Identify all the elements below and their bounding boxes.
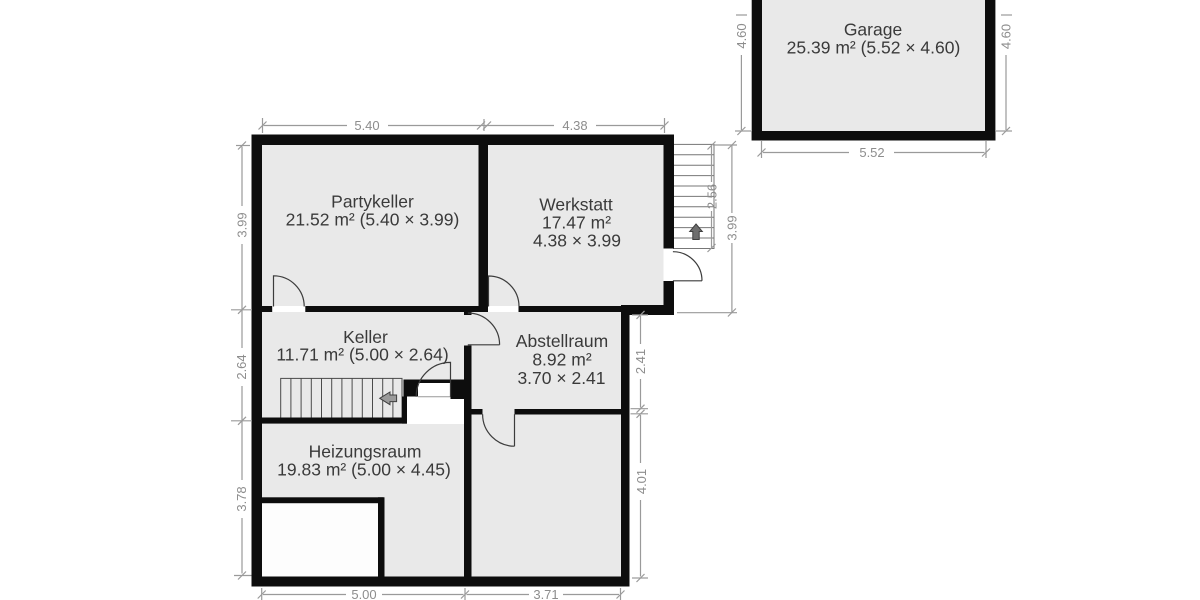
svg-text:Partykeller: Partykeller (331, 192, 414, 212)
svg-text:Heizungsraum: Heizungsraum (309, 442, 422, 462)
svg-text:3.99: 3.99 (235, 212, 250, 237)
svg-text:3.78: 3.78 (234, 486, 249, 511)
svg-text:Abstellraum: Abstellraum (516, 331, 608, 351)
svg-text:3.70 × 2.41: 3.70 × 2.41 (517, 368, 605, 388)
svg-text:4.60: 4.60 (999, 24, 1014, 49)
svg-text:5.00: 5.00 (351, 587, 376, 600)
svg-text:3.71: 3.71 (533, 587, 558, 600)
svg-text:4.01: 4.01 (634, 469, 649, 494)
svg-text:4.60: 4.60 (734, 23, 749, 48)
svg-text:17.47 m²: 17.47 m² (542, 213, 611, 233)
svg-text:Garage: Garage (844, 20, 902, 40)
svg-text:11.71 m² (5.00 × 2.64): 11.71 m² (5.00 × 2.64) (276, 345, 448, 365)
svg-text:5.40: 5.40 (354, 118, 379, 133)
svg-text:25.39 m² (5.52 × 4.60): 25.39 m² (5.52 × 4.60) (787, 38, 961, 58)
svg-text:5.52: 5.52 (859, 145, 884, 160)
svg-text:2.41: 2.41 (633, 349, 648, 374)
svg-text:4.38 × 3.99: 4.38 × 3.99 (533, 231, 621, 251)
svg-text:Werkstatt: Werkstatt (539, 195, 613, 215)
svg-text:21.52 m² (5.40 × 3.99): 21.52 m² (5.40 × 3.99) (286, 210, 460, 230)
svg-text:2.56: 2.56 (705, 184, 720, 209)
svg-text:2.64: 2.64 (234, 354, 249, 379)
svg-text:19.83 m² (5.00 × 4.45): 19.83 m² (5.00 × 4.45) (277, 460, 451, 480)
svg-text:4.38: 4.38 (562, 118, 587, 133)
svg-text:3.99: 3.99 (724, 215, 739, 240)
svg-text:8.92 m²: 8.92 m² (532, 350, 591, 370)
